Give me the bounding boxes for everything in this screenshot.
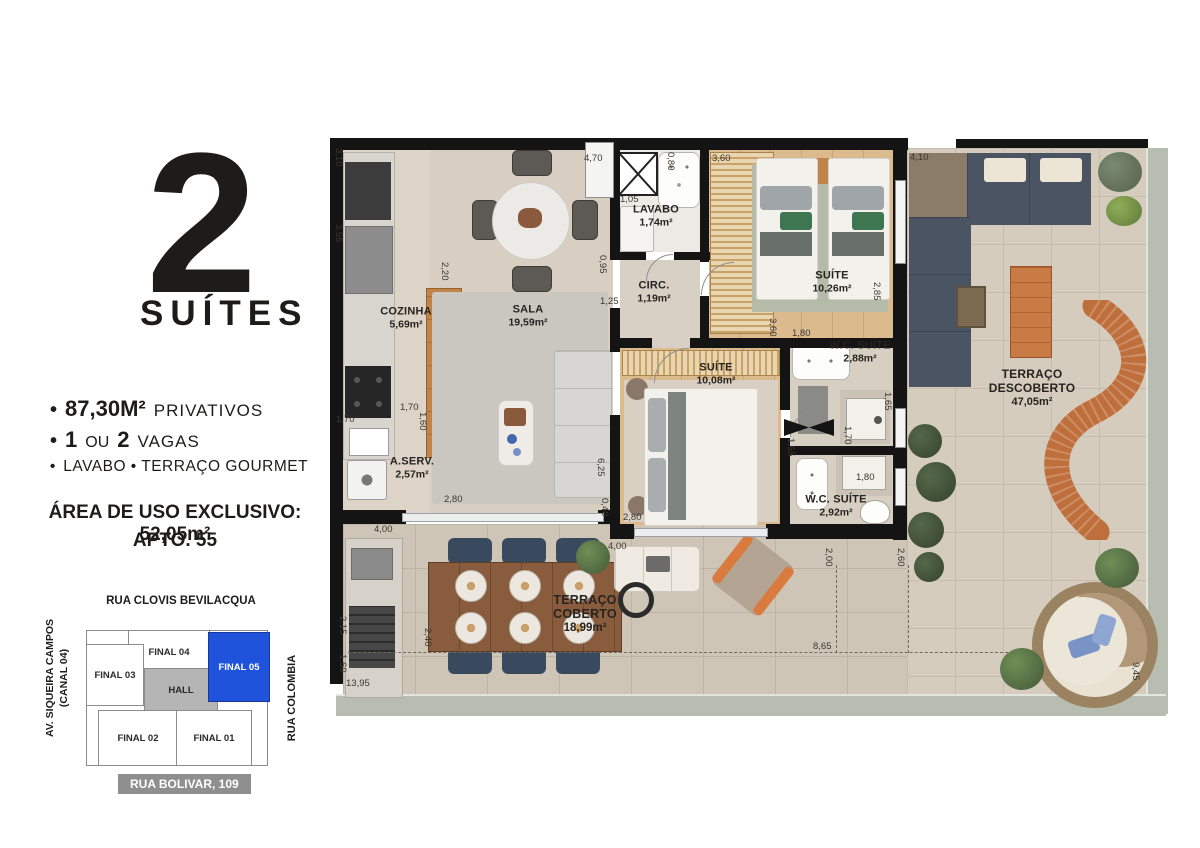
street-right-label: RUA COLOMBIA <box>286 628 298 768</box>
dimension-label: 3,55 <box>333 224 344 243</box>
wall <box>610 415 620 524</box>
keyplan-unit-hall: HALL <box>144 668 218 712</box>
room-name: A.SERV. <box>390 456 434 469</box>
round-daybed <box>1032 582 1158 708</box>
feature-list: • 87,30M² PRIVATIVOS • 1 OU 2 VAGAS • LA… <box>50 396 308 476</box>
wall <box>700 150 709 262</box>
outdoor-chair <box>448 538 492 564</box>
plant <box>914 552 944 582</box>
room-name: TERRAÇO COBERTO <box>535 593 635 622</box>
room-label-aserv: A.SERV. 2,57m² <box>390 456 434 481</box>
decor-vase <box>513 448 521 456</box>
wall <box>610 252 646 260</box>
dimension-label: 2,80 <box>444 494 463 505</box>
dimension-label: 1,80 <box>856 472 875 483</box>
dimension-label: 3,10 <box>333 148 344 167</box>
dining-chair <box>512 266 552 292</box>
dimension-label: 0,80 <box>665 152 676 171</box>
room-area: 10,08m² <box>696 374 735 386</box>
bullet: • <box>50 458 55 475</box>
wall-pillar <box>585 142 614 198</box>
dimension-label: 1,05 <box>620 194 639 205</box>
room-area: 47,05m² <box>977 395 1087 408</box>
room-name: SUÍTE <box>812 270 851 283</box>
feature-vagas: • 1 OU 2 VAGAS <box>50 427 308 453</box>
unit-label: FINAL 05 <box>218 662 259 673</box>
feature-lavabo-terraco: • LAVABO • TERRAÇO GOURMET <box>50 458 308 476</box>
decor-vase <box>507 434 517 444</box>
headline-word: SUÍTES <box>140 294 308 334</box>
wall <box>330 138 343 522</box>
dimension-label: 1,70 <box>336 414 355 425</box>
room-label-sala: SALA 19,59m² <box>508 304 547 329</box>
oven-tower <box>345 162 391 220</box>
headline-number: 2 <box>146 148 251 300</box>
dimension-label: 6,25 <box>595 458 606 477</box>
dimension-label: 0,40 <box>599 498 610 517</box>
feature-mid: OU <box>85 434 109 452</box>
terrace-boundary-dashed <box>908 565 909 653</box>
room-name: COZINHA <box>380 306 432 319</box>
table-centerpiece <box>518 208 542 228</box>
grill <box>349 606 395 668</box>
apto-line: APTO. 55 <box>20 530 330 552</box>
room-area: 1,74m² <box>633 216 679 228</box>
wall <box>330 138 908 150</box>
dimension-label: 1,55 <box>785 438 796 457</box>
wall <box>610 338 652 348</box>
dimension-label: 4,00 <box>374 524 393 535</box>
dining-chair <box>572 200 598 240</box>
dimension-label: 2,00 <box>823 548 834 567</box>
terrace-boundary-dashed <box>836 565 837 653</box>
shower-drain <box>874 416 882 424</box>
feature-rest: VAGAS <box>138 432 200 452</box>
window <box>895 180 906 264</box>
room-name: LAVABO <box>633 204 679 217</box>
feature-rest: LAVABO • TERRAÇO GOURMET <box>63 458 308 476</box>
room-label-wc2: W.C. SUÍTE 2,92m² <box>805 494 866 519</box>
coffee-table-tray <box>504 408 526 426</box>
dimension-label: 4,10 <box>910 152 929 163</box>
dimension-label: 2,40 <box>422 628 433 647</box>
room-name: W.C. SUÍTE <box>805 494 866 507</box>
fridge <box>345 226 393 294</box>
sofa-tray <box>646 556 670 572</box>
bullet: • <box>50 399 57 422</box>
dimension-label: 13,95 <box>346 678 370 689</box>
side-table <box>956 286 986 328</box>
pocket-door-icon <box>784 419 834 436</box>
bed-throw <box>852 212 884 230</box>
room-label-cozinha: COZINHA 5,69m² <box>380 306 432 331</box>
room-area: 2,57m² <box>390 468 434 480</box>
keyplan-unit-final03: FINAL 03 <box>86 644 144 706</box>
plant <box>1095 548 1139 588</box>
door-swing-arc <box>646 254 673 281</box>
dimension-label: 4,00 <box>608 541 627 552</box>
unit-label: FINAL 04 <box>148 647 189 658</box>
room-area: 5,69m² <box>380 318 432 330</box>
room-label-circ: CIRC. 1,19m² <box>637 280 670 305</box>
street-left-line2: (CANAL 04) <box>58 598 72 758</box>
place-setting <box>455 612 487 644</box>
dimension-label: 1,65 <box>882 392 893 411</box>
kitchen-sink <box>349 428 389 456</box>
dimension-label: 2,60 <box>895 548 906 567</box>
keyplan-unit-final01: FINAL 01 <box>176 710 252 766</box>
dimension-label: 1,80 <box>792 328 811 339</box>
washer <box>347 460 387 500</box>
dimension-label: 9,45 <box>1130 662 1141 681</box>
potted-plant <box>576 540 610 574</box>
room-name: SUÍTE <box>696 362 735 375</box>
wall <box>610 524 634 539</box>
palm-plant <box>1106 196 1142 226</box>
room-name: TERRAÇO DESCOBERTO <box>977 368 1087 396</box>
dimension-label: 3,60 <box>767 318 778 337</box>
room-label-wc1: W.C. SUÍTE 2,88m² <box>829 340 890 365</box>
dimension-label: 2,85 <box>871 282 882 301</box>
wall <box>766 524 907 539</box>
dimension-label: 1,60 <box>337 654 348 673</box>
dining-chair <box>512 150 552 176</box>
wall <box>780 446 907 455</box>
keyplan-unit-final02: FINAL 02 <box>98 710 178 766</box>
dimension-label: 8,65 <box>813 641 832 652</box>
feature-strong: 2 <box>117 427 129 453</box>
unit-label: FINAL 01 <box>193 733 234 744</box>
street-left-label: AV. SIQUEIRA CAMPOS (CANAL 04) <box>44 598 76 758</box>
feature-rest: PRIVATIVOS <box>154 401 264 421</box>
room-name: CIRC. <box>637 280 670 293</box>
room-area: 1,19m² <box>637 292 670 304</box>
terrace-boundary-dashed <box>348 652 1008 653</box>
door-swing-arc <box>701 262 734 295</box>
plant <box>1000 648 1044 690</box>
dimension-label: 1,70 <box>842 426 853 445</box>
unit-label: FINAL 03 <box>94 670 135 681</box>
dimension-label: 2,20 <box>439 262 450 281</box>
wall <box>330 510 406 524</box>
street-top-label: RUA CLOVIS BEVILACQUA <box>86 595 276 607</box>
sofa-cushion <box>1040 158 1082 182</box>
room-area: 19,59m² <box>508 316 547 328</box>
bed-pillow <box>760 186 812 210</box>
gourmet-sink <box>351 548 393 580</box>
sliding-glass-door <box>402 513 604 522</box>
room-area: 10,26m² <box>812 282 851 294</box>
room-label-suite1: SUÍTE 10,26m² <box>812 270 851 295</box>
window <box>895 468 906 506</box>
room-name: W.C. SUÍTE <box>829 340 890 353</box>
unit-label: HALL <box>168 685 193 696</box>
terrace-outer-border <box>336 694 1166 716</box>
room-area: 2,88m² <box>829 352 890 364</box>
room-name: SALA <box>508 304 547 317</box>
wall <box>956 139 1148 148</box>
keyplan-unit-final05-highlight: FINAL 05 <box>208 632 270 702</box>
room-label-terraco-coberto: TERRAÇO COBERTO 18,99m² <box>535 593 635 635</box>
street-left-line1: AV. SIQUEIRA CAMPOS <box>44 598 58 758</box>
room-label-terraco-descoberto: TERRAÇO DESCOBERTO 47,05m² <box>977 368 1087 408</box>
plant <box>1098 152 1142 192</box>
street-bottom-badge: RUA BOLIVAR, 109 <box>118 774 251 794</box>
room-area: 2,92m² <box>805 506 866 518</box>
dimension-label: 0,95 <box>597 255 608 274</box>
dimension-label: 1,70 <box>400 402 419 413</box>
feature-strong: 1 <box>65 427 77 453</box>
dimension-label: 1,25 <box>600 296 619 307</box>
room-label-suite2: SUÍTE 10,08m² <box>696 362 735 387</box>
cooktop <box>345 366 391 418</box>
feature-strong: 87,30M² <box>65 396 146 422</box>
sofa-cushion <box>984 158 1026 182</box>
place-setting <box>455 570 487 602</box>
outdoor-chair <box>502 538 546 564</box>
dimension-label: 1,60 <box>417 412 428 431</box>
room-label-lavabo: LAVABO 1,74m² <box>633 204 679 229</box>
bed-blanket <box>668 392 686 520</box>
dimension-label: 2,80 <box>623 512 642 523</box>
sliding-glass-door <box>634 528 768 537</box>
bed-pillow <box>648 458 666 512</box>
bed-blanket <box>832 232 884 256</box>
bed-pillow <box>832 186 884 210</box>
dimension-label: 2,15 <box>337 616 348 635</box>
bed-throw <box>780 212 812 230</box>
dimension-label: 3,60 <box>712 153 731 164</box>
plant <box>908 512 944 548</box>
bed-blanket <box>760 232 812 256</box>
bed-pillow <box>648 398 666 452</box>
room-area: 18,99m² <box>535 622 635 635</box>
wall <box>780 348 790 410</box>
page: 2 SUÍTES • 87,30M² PRIVATIVOS • 1 OU 2 V… <box>0 0 1200 848</box>
feature-privativos: • 87,30M² PRIVATIVOS <box>50 396 308 422</box>
plant <box>916 462 956 502</box>
plant <box>908 424 942 458</box>
dimension-label: 4,70 <box>584 153 603 164</box>
window <box>895 408 906 448</box>
curved-bench <box>1035 300 1155 540</box>
shower-x-icon <box>618 152 658 196</box>
unit-label: FINAL 02 <box>117 733 158 744</box>
bullet: • <box>50 430 57 453</box>
